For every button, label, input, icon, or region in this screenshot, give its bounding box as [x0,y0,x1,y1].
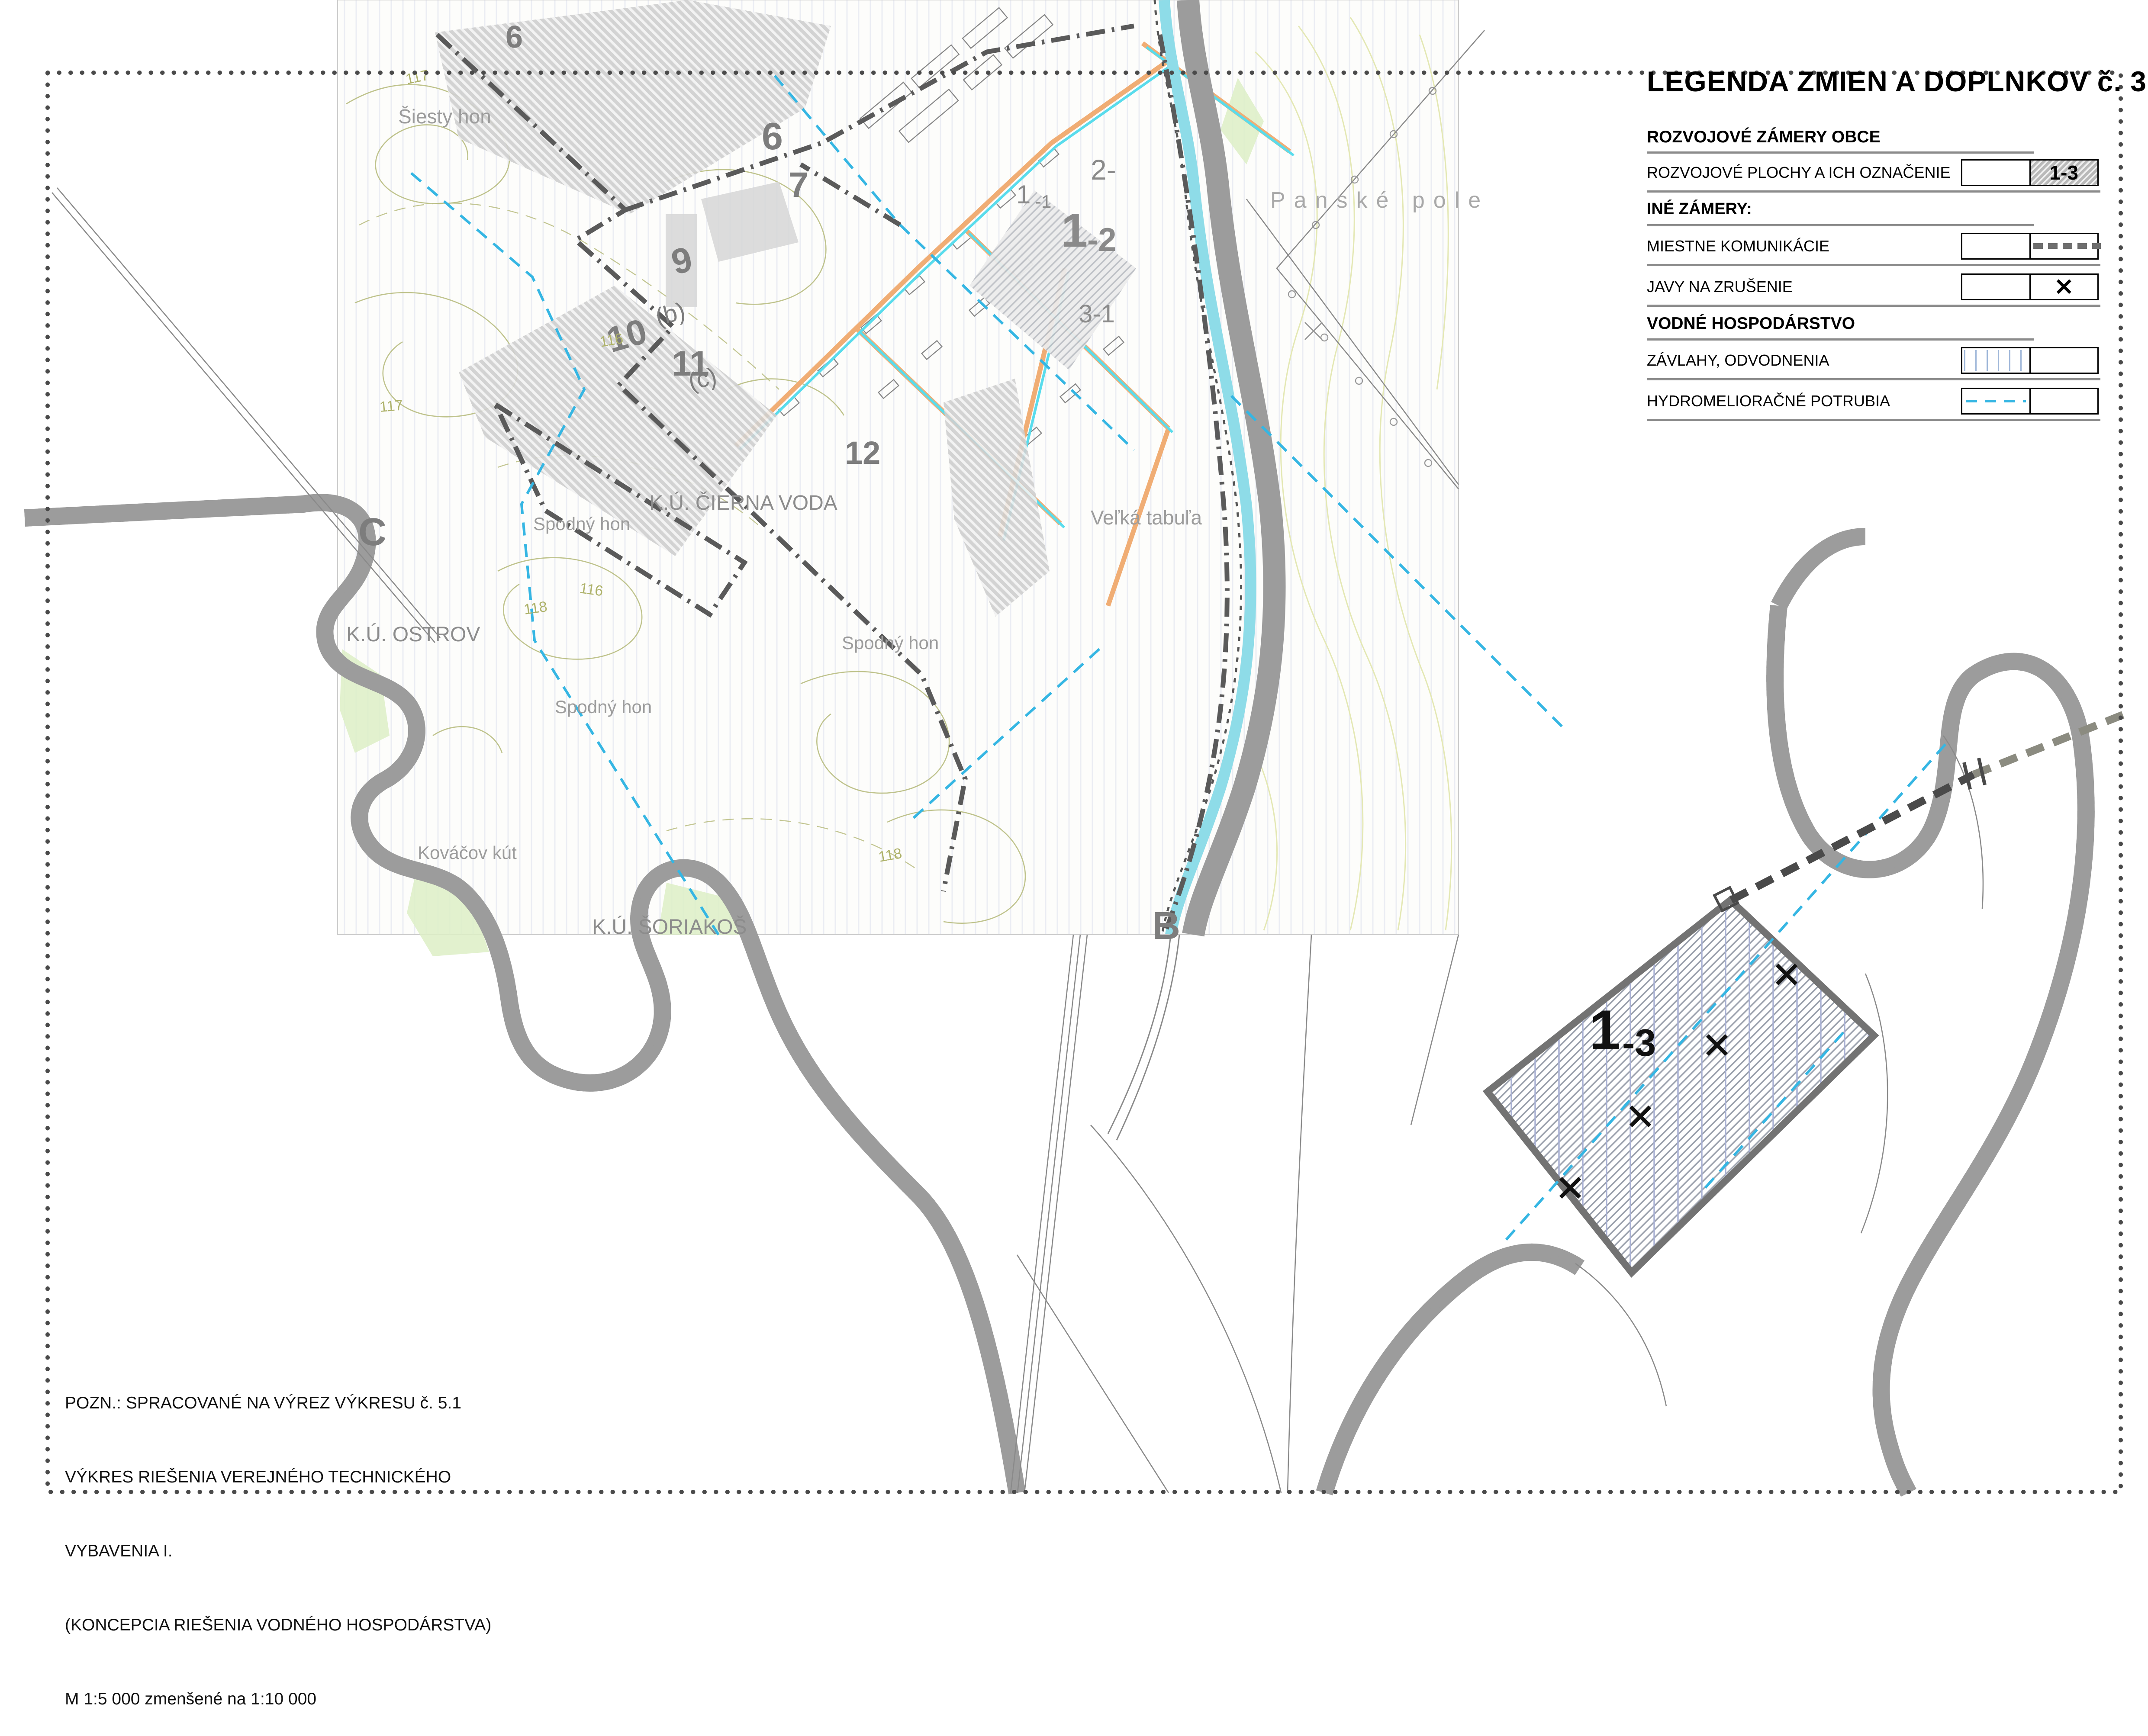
swatch-cell-irrigation [1962,348,2029,373]
divider [1647,190,2100,193]
section-label-C: C [358,511,386,554]
cadastre-label: K.Ú. OSTROV [346,623,480,646]
legend-row-label: JAVY NA ZRUŠENIE [1647,278,1793,296]
legend-title: LEGENDA ZMIEN A DOPLNKOV č. 3: [1647,65,2100,98]
swatch-cell-empty [1962,161,2029,185]
area-1-3 [1488,900,1874,1273]
note-line: M 1:5 000 zmenšené na 1:10 000 [65,1687,491,1711]
plan-sheet: 6679101112(b)(c)1-11-22-3-1CB1-3Šiesty h… [0,0,2148,1518]
legend-panel: LEGENDA ZMIEN A DOPLNKOV č. 3: ROZVOJOVÉ… [1647,65,2100,98]
area-label-7: 7 [789,165,808,205]
legend-row-label: ZÁVLAHY, ODVODNENIA [1647,351,1829,370]
cadastre-label: K.Ú. ŠORIAKOŠ [592,915,747,939]
place-label: Spodný hon [533,514,630,534]
x-mark-swatch: ✕ [1961,273,2099,300]
divider [1647,419,2100,421]
area-label-2: 2- [1091,154,1116,186]
area-label-1-1: 1 [1016,180,1031,209]
note-line: VÝKRES RIEŠENIA VEREJNÉHO TECHNICKÉHO [65,1465,491,1489]
legend-row: MIESTNE KOMUNIKÁCIE [1647,233,2100,260]
legend-row-label: MIESTNE KOMUNIKÁCIE [1647,237,1829,255]
x-mark-symbol: ✕ [2031,275,2098,299]
divider [1647,305,2100,307]
area-label-6: 6 [762,115,783,158]
legend-section-heading: VODNÉ HOSPODÁRSTVO [1647,314,1855,333]
note-line: (KONCEPCIA RIEŠENIA VODNÉHO HOSPODÁRSTVA… [65,1613,491,1637]
swatch-cell-x: ✕ [2029,275,2098,299]
area-badge: 1-3 [2031,161,2098,185]
legend-section-heading: INÉ ZÁMERY: [1647,200,1752,218]
swatch-cell-pipe [1962,389,2029,413]
place-label: Kováčov kút [418,842,517,863]
divider [1647,338,2034,341]
cadastre-label: K.Ú. ČIERNA VODA [649,491,837,514]
road-dash-symbol [2033,243,2101,249]
swatch-cell-empty [1962,275,2029,299]
place-label: Panské pole [1270,188,1489,213]
area-label-3-1: 3-1 [1079,300,1115,328]
place-label: Veľká tabuľa [1091,506,1202,529]
area-label-12: 12 [845,435,880,471]
note-block: POZN.: SPRACOVANÉ NA VÝREZ VÝKRESU č. 5.… [65,1341,491,1736]
divider [1647,264,2100,266]
area-label-6: 6 [506,20,523,55]
place-label: Šiesty hon [398,105,491,128]
note-line: VYBAVENIA I. [65,1539,491,1563]
swatch-cell-empty [2029,348,2098,373]
irrigation-swatch [1961,347,2099,374]
swatch-cell-hatched: 1-3 [2029,161,2098,185]
swatch-cell-empty [1962,234,2029,258]
contour-label: 116 [579,580,604,599]
development-area-swatch: 1-3 [1961,159,2099,186]
road-dashed-swatch [1961,233,2099,260]
legend-row: JAVY NA ZRUŠENIE ✕ [1647,273,2100,301]
area-label-1-3: 1 [1589,998,1620,1061]
divider [1647,151,2034,154]
pipe-dash-symbol [1966,400,2026,402]
area-label-1-2: 1 [1061,204,1088,257]
area-label-1-3: -3 [1622,1021,1656,1064]
swatch-cell-road [2029,234,2098,258]
divider [1647,224,2034,226]
map-canvas: 6679101112(b)(c)1-11-22-3-1CB1-3Šiesty h… [0,0,2148,1518]
area-label-1-2: -2 [1087,222,1117,258]
section-label-B: B [1152,904,1180,948]
place-label: Spodný hon [842,633,939,653]
divider [1647,378,2100,380]
legend-section-heading: ROZVOJOVÉ ZÁMERY OBCE [1647,128,1881,146]
note-line: POZN.: SPRACOVANÉ NA VÝREZ VÝKRESU č. 5.… [65,1391,491,1415]
pipe-dashed-swatch [1961,388,2099,415]
irrigation-lines-symbol [1964,350,2028,371]
contour-label: 118 [523,598,548,618]
legend-row: ROZVOJOVÉ PLOCHY A ICH OZNAČENIE 1-3 [1647,159,2100,187]
legend-row-label: ROZVOJOVÉ PLOCHY A ICH OZNAČENIE [1647,164,1951,182]
legend-row: ZÁVLAHY, ODVODNENIA [1647,347,2100,375]
contour-label: 117 [379,397,403,415]
place-label: Spodný hon [555,697,652,717]
legend-row: HYDROMELIORAČNÉ POTRUBIA [1647,388,2100,415]
legend-row-label: HYDROMELIORAČNÉ POTRUBIA [1647,392,1890,410]
swatch-cell-empty [2029,389,2098,413]
area-label-1-1: -1 [1035,191,1051,212]
